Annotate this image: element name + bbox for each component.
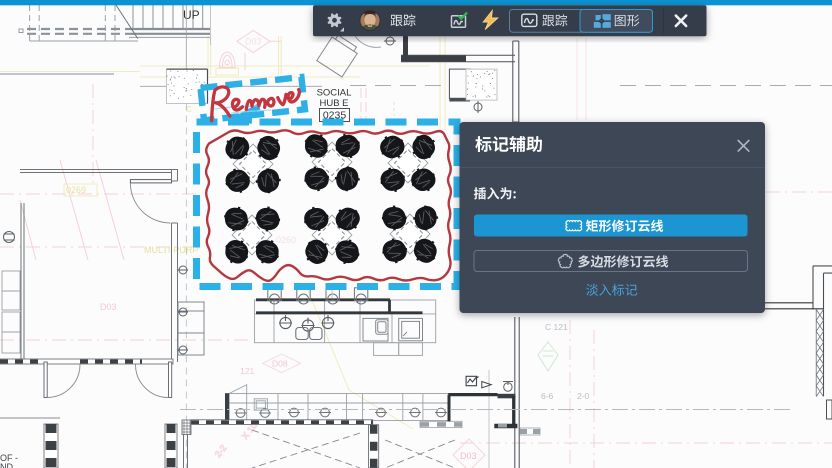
svg-text:C: C [186, 105, 192, 114]
svg-text:D03: D03 [245, 37, 262, 47]
svg-text:2-0: 2-0 [577, 391, 590, 401]
svg-text:0269: 0269 [66, 185, 86, 195]
svg-text:D03: D03 [460, 451, 477, 461]
svg-text:6-6: 6-6 [541, 391, 554, 401]
svg-text:121: 121 [240, 366, 254, 376]
svg-text:C 121: C 121 [545, 322, 568, 332]
svg-text:D03: D03 [100, 302, 117, 312]
svg-text:0260: 0260 [276, 235, 296, 245]
svg-text:UP: UP [183, 8, 200, 22]
svg-text:ND: ND [0, 462, 13, 468]
svg-text:D08: D08 [272, 359, 288, 369]
svg-text:HUB E: HUB E [319, 98, 348, 109]
svg-text:SOCIAL: SOCIAL [317, 88, 352, 99]
